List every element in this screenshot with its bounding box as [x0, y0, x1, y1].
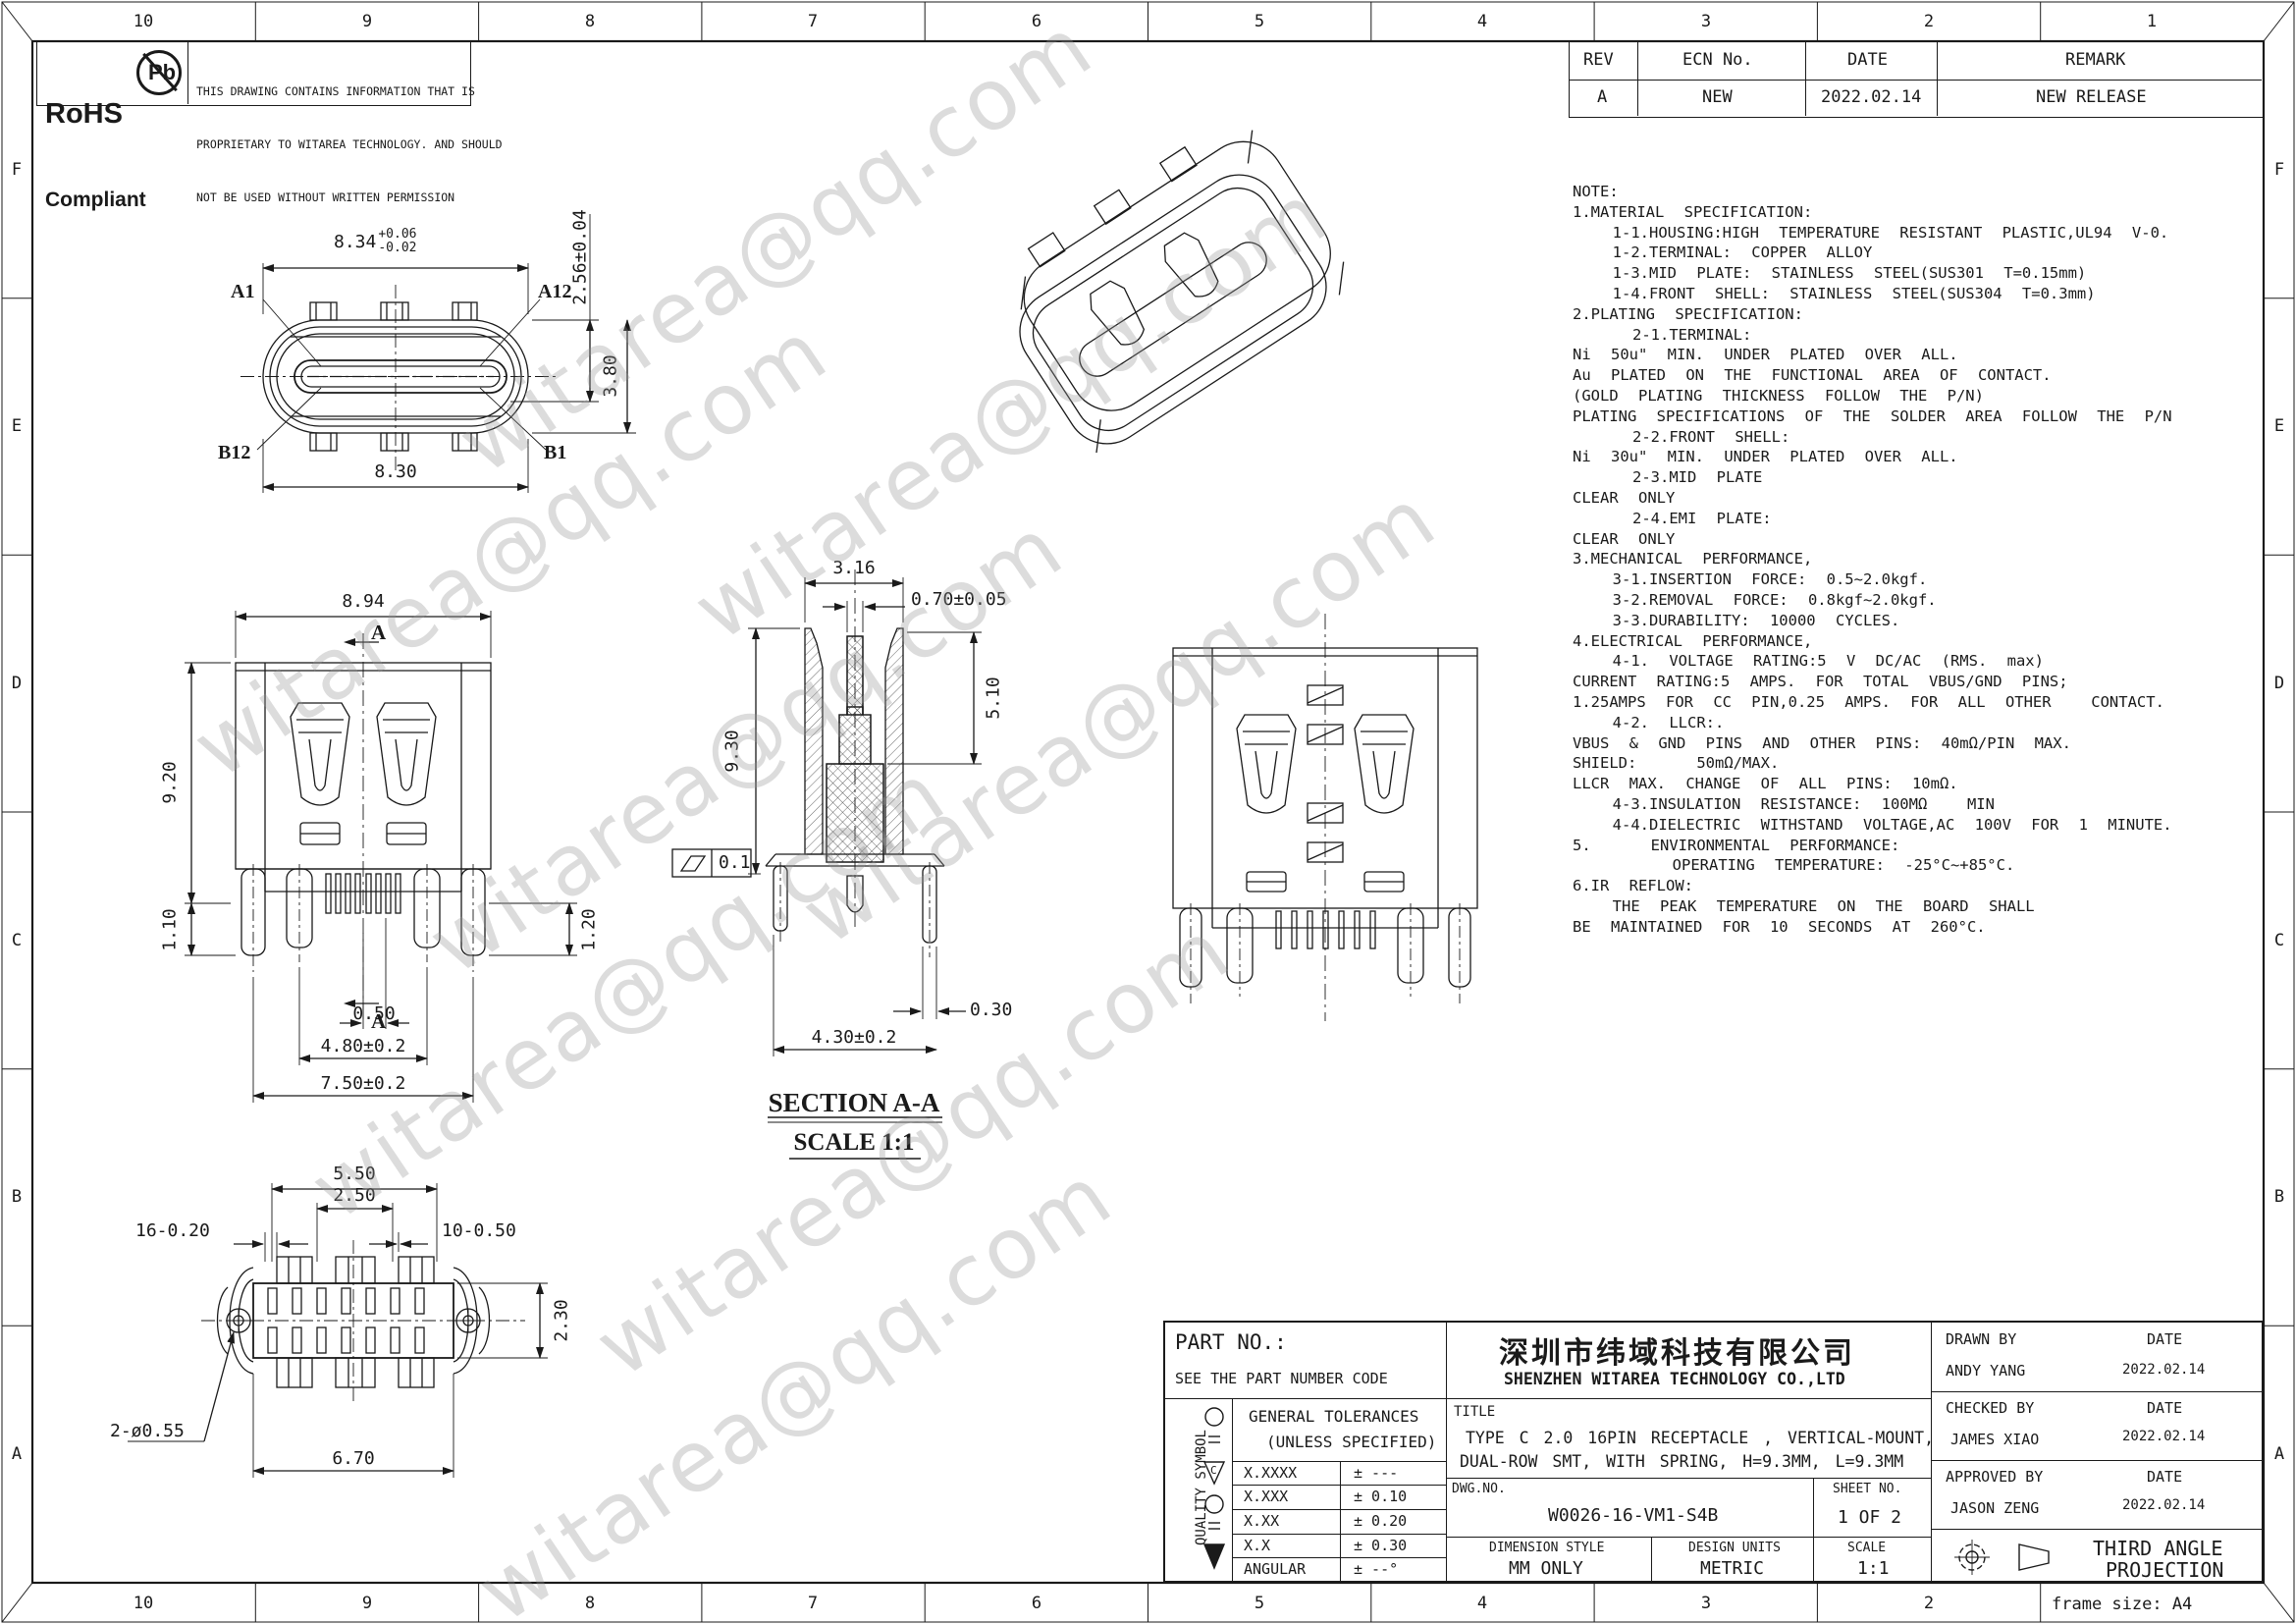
tol-value: ± 0.20: [1354, 1512, 1407, 1530]
checked-date-label: DATE: [2147, 1399, 2182, 1417]
svg-text:C: C: [1210, 1464, 1217, 1477]
section-label: SECTION A-A: [769, 1088, 940, 1118]
remark-col-header: REMARK: [2065, 50, 2125, 70]
title-block: PART NO.: SEE THE PART NUMBER CODE QUALI…: [1163, 1321, 2264, 1583]
sheet-no-value: 1 OF 2: [1838, 1507, 1901, 1528]
dim-side-leg-right: 1.20: [579, 908, 600, 950]
pin-label-b1: B1: [544, 442, 566, 464]
drawing-sheet: 10 9 8 7 6 5 4 3 2 1 10 9 8 7 6 5 4 3 2 …: [0, 0, 2296, 1624]
dim-width-top: 8.34 +0.06 -0.02: [334, 228, 417, 255]
dim-side-leg: 1.10: [160, 908, 181, 950]
projection-symbol-icons: [1950, 1537, 2078, 1578]
tol-range: X.XX: [1244, 1512, 1279, 1530]
dim-span-outer: 7.50±0.2: [321, 1073, 406, 1094]
dim-width-bottom: 8.30: [374, 461, 416, 482]
tolerances-title1: GENERAL TOLERANCES: [1249, 1407, 1418, 1426]
note-line: 2.PLATING SPECIFICATION:: [1573, 305, 2260, 326]
note-line: CLEAR ONLY: [1573, 530, 2260, 551]
note-line: 1-3.MID PLATE: STAINLESS STEEL(SUS301 T=…: [1573, 264, 2260, 285]
dwg-no-label: DWG.NO.: [1452, 1482, 1506, 1496]
note-line: Ni 30u" MIN. UNDER PLATED OVER ALL.: [1573, 448, 2260, 468]
tol-value: ± 0.10: [1354, 1488, 1407, 1505]
remark-value: NEW RELEASE: [2036, 87, 2147, 107]
note-line: 4.ELECTRICAL PERFORMANCE,: [1573, 632, 2260, 653]
dim-tol-minus: -0.02: [378, 242, 416, 255]
flatness-value: 0.1: [719, 852, 751, 873]
note-line: 1.25AMPS FOR CC PIN,0.25 AMPS. FOR ALL O…: [1573, 693, 2260, 714]
note-line: 3.MECHANICAL PERFORMANCE,: [1573, 550, 2260, 570]
tol-range: ANGULAR: [1244, 1560, 1306, 1578]
part-no-value: SEE THE PART NUMBER CODE: [1175, 1370, 1388, 1387]
note-line: CLEAR ONLY: [1573, 489, 2260, 510]
date-value: 2022.02.14: [1821, 87, 1921, 107]
approved-date-label: DATE: [2147, 1468, 2182, 1486]
dim-section-depth: 5.10: [984, 677, 1004, 719]
note-line: 4-4.DIELECTRIC WITHSTAND VOLTAGE,AC 100V…: [1573, 816, 2260, 837]
rohs-header-box: RoHS Compliant Pb THIS DRAWING CONTAINS …: [36, 41, 471, 106]
rohs-line1: RoHS: [45, 100, 146, 129]
approved-by-label: APPROVED BY: [1946, 1468, 2043, 1486]
note-line: 2-2.FRONT SHELL:: [1573, 428, 2260, 449]
company-name-en: SHENZHEN WITAREA TECHNOLOGY CO.,LTD: [1504, 1370, 1845, 1388]
section-mark-top: A: [371, 621, 386, 645]
ecn-col-header: ECN No.: [1682, 50, 1753, 70]
notes-block: NOTE: 1.MATERIAL SPECIFICATION: 1-1.HOUS…: [1573, 183, 2260, 938]
note-line: BE MAINTAINED FOR 10 SECONDS AT 260°C.: [1573, 918, 2260, 939]
drawn-by-value: ANDY YANG: [1946, 1362, 2025, 1380]
scale-value: 1:1: [1857, 1558, 1890, 1579]
projection-line1: THIRD ANGLE: [2093, 1537, 2222, 1560]
note-line: 4-2. LLCR:.: [1573, 714, 2260, 734]
note-line: 2-1.TERMINAL:: [1573, 326, 2260, 347]
dim-body-length: 6.70: [332, 1448, 374, 1469]
dim-section-span: 4.30±0.2: [812, 1027, 897, 1048]
pin-label-b12: B12: [218, 442, 250, 464]
dim-value: 8.34: [334, 232, 376, 252]
note-line: LLCR MAX. CHANGE OF ALL PINS: 10mΩ.: [1573, 775, 2260, 795]
rohs-label: RoHS Compliant: [45, 43, 146, 271]
date-col-header: DATE: [1847, 50, 1888, 70]
note-line: 1.MATERIAL SPECIFICATION:: [1573, 203, 2260, 224]
approved-by-value: JASON ZENG: [1950, 1499, 2039, 1517]
dimension-style-value: MM ONLY: [1509, 1558, 1583, 1579]
note-line: 1-4.FRONT SHELL: STAINLESS STEEL(SUS304 …: [1573, 285, 2260, 305]
dim-side-height: 9.20: [160, 761, 181, 803]
dim-row-height: 2.30: [552, 1299, 572, 1341]
note-line: 4-3.INSULATION RESISTANCE: 100MΩ MIN: [1573, 795, 2260, 816]
dwg-no-value: W0026-16-VM1-S4B: [1548, 1505, 1718, 1526]
third-angle-symbols: [1950, 1537, 2078, 1578]
note-line: (GOLD PLATING THICKNESS FOLLOW THE P/N): [1573, 387, 2260, 407]
quality-symbol-icons: C: [1201, 1403, 1228, 1578]
dim-pitch-inner: 2.50: [333, 1185, 375, 1206]
dim-span-inner: 4.80±0.2: [321, 1036, 406, 1056]
proprietary-line1: THIS DRAWING CONTAINS INFORMATION THAT I…: [196, 82, 503, 100]
rohs-line2: Compliant: [45, 186, 146, 214]
pin-label-a1: A1: [231, 281, 254, 303]
note-line: 2-3.MID PLATE: [1573, 468, 2260, 489]
drawn-date-value: 2022.02.14: [2122, 1362, 2205, 1378]
quality-symbols: C: [1201, 1403, 1228, 1578]
note-line: 5. ENVIRONMENTAL PERFORMANCE:: [1573, 837, 2260, 857]
dim-pads-left: 16-0.20: [135, 1220, 210, 1241]
note-line: SHIELD: 50mΩ/MAX.: [1573, 754, 2260, 775]
note-line: NOTE:: [1573, 183, 2260, 203]
tol-range: X.X: [1244, 1537, 1270, 1554]
tol-range: X.XXXX: [1244, 1464, 1297, 1482]
dimension-style-label: DIMENSION STYLE: [1489, 1541, 1604, 1555]
note-line: 2-4.EMI PLATE:: [1573, 510, 2260, 530]
tolerances-title2: (UNLESS SPECIFIED): [1266, 1433, 1436, 1451]
note-line: THE PEAK TEMPERATURE ON THE BOARD SHALL: [1573, 897, 2260, 918]
isometric-view-drawing: [913, 79, 1443, 511]
rev-value: A: [1597, 87, 1607, 107]
note-line: 3-1.INSERTION FORCE: 0.5~2.0kgf.: [1573, 570, 2260, 591]
rev-col-header: REV: [1583, 50, 1614, 70]
front-view: 8.34 +0.06 -0.02 8.30 2.56±0.04 3.80 A1 …: [147, 137, 667, 530]
note-line: 3-3.DURABILITY: 10000 CYCLES.: [1573, 612, 2260, 632]
note-line: PLATING SPECIFICATIONS OF THE SOLDER ARE…: [1573, 407, 2260, 428]
title-line2: DUAL-ROW SMT, WITH SPRING, H=9.3MM, L=9.…: [1460, 1452, 1903, 1471]
checked-by-value: JAMES XIAO: [1950, 1431, 2039, 1448]
dim-body-height: 3.80: [601, 354, 621, 397]
dim-mount-holes: 2-ø0.55: [110, 1421, 185, 1441]
dim-section-leg: 0.30: [970, 1000, 1012, 1020]
note-line: CURRENT RATING:5 AMPS. FOR TOTAL VBUS/GN…: [1573, 673, 2260, 693]
note-line: VBUS & GND PINS AND OTHER PINS: 40mΩ/PIN…: [1573, 734, 2260, 755]
rear-view-drawing: [1129, 599, 1551, 1031]
dim-section-width: 3.16: [832, 558, 875, 578]
tol-value: ± 0.30: [1354, 1537, 1407, 1554]
sheet-no-label: SHEET NO.: [1833, 1482, 1901, 1496]
company-name-cn: 深圳市纬域科技有限公司: [1499, 1328, 1855, 1372]
approved-date-value: 2022.02.14: [2122, 1497, 2205, 1513]
checked-date-value: 2022.02.14: [2122, 1429, 2205, 1444]
rear-view: [1129, 599, 1551, 1031]
dim-section-height: 9.30: [722, 730, 743, 772]
pb-free-icon: Pb: [136, 50, 182, 95]
title-line1: TYPE C 2.0 16PIN RECEPTACLE , VERTICAL-M…: [1466, 1429, 1934, 1447]
section-view: 3.16 0.70±0.05 9.30 5.10 0.1 0.30 4.30±0…: [658, 550, 1090, 1178]
pin-label-a12: A12: [538, 281, 571, 303]
note-line: 1-2.TERMINAL: COPPER ALLOY: [1573, 244, 2260, 264]
dim-tol-plus: +0.06: [378, 228, 416, 242]
note-line: Ni 50u" MIN. UNDER PLATED OVER ALL.: [1573, 346, 2260, 366]
dim-pin-offset: 0.50: [352, 1003, 395, 1024]
section-scale-label: SCALE 1:1: [794, 1129, 915, 1157]
note-line: 3-2.REMOVAL FORCE: 0.8kgf~2.0kgf.: [1573, 591, 2260, 612]
revision-table: REV ECN No. DATE REMARK A NEW 2022.02.14…: [1569, 41, 2264, 118]
tol-range: X.XXX: [1244, 1488, 1288, 1505]
note-line: 6.IR REFLOW:: [1573, 877, 2260, 897]
tol-value: ± --°: [1354, 1560, 1398, 1578]
scale-label: SCALE: [1847, 1541, 1886, 1555]
dim-section-pin: 0.70±0.05: [911, 589, 1007, 610]
dim-tongue-height: 2.56±0.04: [570, 209, 591, 305]
note-line: OPERATING TEMPERATURE: -25°C~+85°C.: [1573, 856, 2260, 877]
drawn-by-label: DRAWN BY: [1946, 1330, 2016, 1348]
tol-value: ± ---: [1354, 1464, 1398, 1482]
note-line: 1-1.HOUSING:HIGH TEMPERATURE RESISTANT P…: [1573, 224, 2260, 244]
checked-by-label: CHECKED BY: [1946, 1399, 2034, 1417]
dim-pads-right: 10-0.50: [442, 1220, 516, 1241]
note-line: 4-1. VOLTAGE RATING:5 V DC/AC (RMS. max): [1573, 652, 2260, 673]
note-line: Au PLATED ON THE FUNCTIONAL AREA OF CONT…: [1573, 366, 2260, 387]
title-label: TITLE: [1454, 1404, 1495, 1420]
top-view: 5.50 2.50 16-0.20 10-0.50 2.30 2-ø0.55 6…: [108, 1164, 618, 1502]
drawn-date-label: DATE: [2147, 1330, 2182, 1348]
projection-line2: PROJECTION: [2106, 1558, 2223, 1582]
side-view: 8.94 A A 9.20 1.10 1.20 0.50 4.80±0.2 7.…: [137, 579, 628, 1129]
isometric-view: [913, 79, 1443, 511]
dim-pitch-outer: 5.50: [333, 1164, 375, 1184]
part-no-label: PART NO.:: [1175, 1330, 1287, 1354]
design-units-value: METRIC: [1700, 1558, 1764, 1579]
ecn-value: NEW: [1702, 87, 1733, 107]
design-units-label: DESIGN UNITS: [1688, 1541, 1781, 1555]
dim-side-width: 8.94: [342, 591, 384, 612]
